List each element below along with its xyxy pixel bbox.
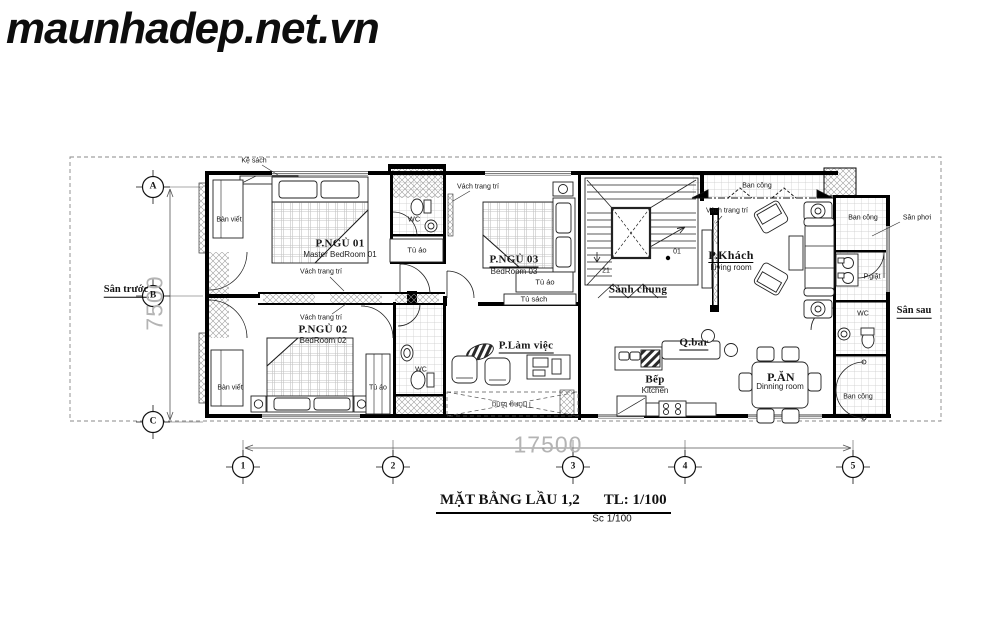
bookcase-label: Tủ sách: [521, 295, 548, 303]
bar-label: Q.bar: [679, 338, 708, 351]
room-subtitle-bedroom1: Master BedRoom 01: [303, 251, 376, 259]
stair-step-end: 01: [673, 249, 681, 256]
balcony-label-right: Ban công: [848, 215, 878, 222]
drawing-scale-small: Sc 1/100: [592, 514, 631, 525]
decor-wall-label-4: Vách trang trí: [300, 315, 342, 322]
horizontal-dimension: 17500: [514, 434, 583, 457]
grid-marker-col-1: 1: [241, 462, 246, 472]
back-yard-label: Sân sau: [897, 306, 932, 319]
room-title-study: P.Làm việc: [499, 341, 554, 354]
drawing-title: MẶT BẰNG LẦU 1,2: [440, 492, 580, 509]
wardrobe-label-bedroom3: Tủ áo: [535, 278, 554, 286]
decor-wall-label-2: Vách trang trí: [706, 208, 748, 215]
wall-shelf-label: Kệ sách: [241, 158, 266, 165]
void-label: Thông tầng: [492, 400, 532, 408]
decor-wall-label-3: Vách trang trí: [300, 269, 342, 276]
room-subtitle-kitchen: Kitchen: [642, 387, 669, 395]
room-title-living: P.Khách: [708, 249, 753, 263]
stair-step-start: 21: [602, 268, 610, 275]
room-title-bedroom3: P.NGỦ 03: [489, 255, 538, 268]
floor-plan-page: maunhadep.net.vn: [0, 0, 1000, 640]
grid-marker-col-5: 5: [851, 462, 856, 472]
grid-marker-row-c: C: [150, 417, 157, 427]
vertical-dimension: 7500: [144, 275, 167, 330]
grid-marker-row-b: B: [150, 291, 156, 301]
laundry-label: P.giặt: [864, 274, 881, 281]
balcony-label-bottom-right: Ban công: [843, 394, 873, 401]
desk-label-master: Bàn viết: [216, 217, 241, 224]
room-title-bedroom2: P.NGỦ 02: [298, 325, 347, 336]
drying-yard-label: Sân phơi: [903, 215, 931, 222]
room-subtitle-living: Living room: [710, 264, 751, 272]
grid-marker-row-a: A: [150, 182, 157, 192]
drawing-title-block: MẶT BẰNG LẦU 1,2 TL: 1/100: [436, 492, 671, 514]
room-title-bedroom1: P.NGỦ 01: [315, 239, 364, 250]
room-subtitle-dining: Dinning room: [756, 383, 804, 391]
grid-marker-col-3: 3: [571, 462, 576, 472]
wc-label-top: WC: [408, 215, 421, 223]
wc-label-right: WC: [857, 311, 869, 318]
drawing-scale: TL: 1/100: [604, 492, 667, 509]
grid-marker-col-2: 2: [391, 462, 396, 472]
room-subtitle-bedroom2: BedRoom 02: [300, 337, 347, 345]
desk-label-bedroom2: Bàn viết: [217, 385, 242, 392]
wc-label-bottom: WC: [415, 367, 427, 374]
grid-marker-col-4: 4: [683, 462, 688, 472]
balcony-label-top: Ban công: [742, 183, 772, 190]
room-subtitle-bedroom3: BedRoom 03: [491, 268, 538, 276]
wardrobe-label-bedroom2: Tủ áo: [369, 385, 387, 392]
room-title-hall: Sảnh chung: [609, 285, 667, 298]
wardrobe-label-top: Tủ áo: [407, 246, 426, 254]
decor-wall-label-1: Vách trang trí: [457, 184, 499, 191]
